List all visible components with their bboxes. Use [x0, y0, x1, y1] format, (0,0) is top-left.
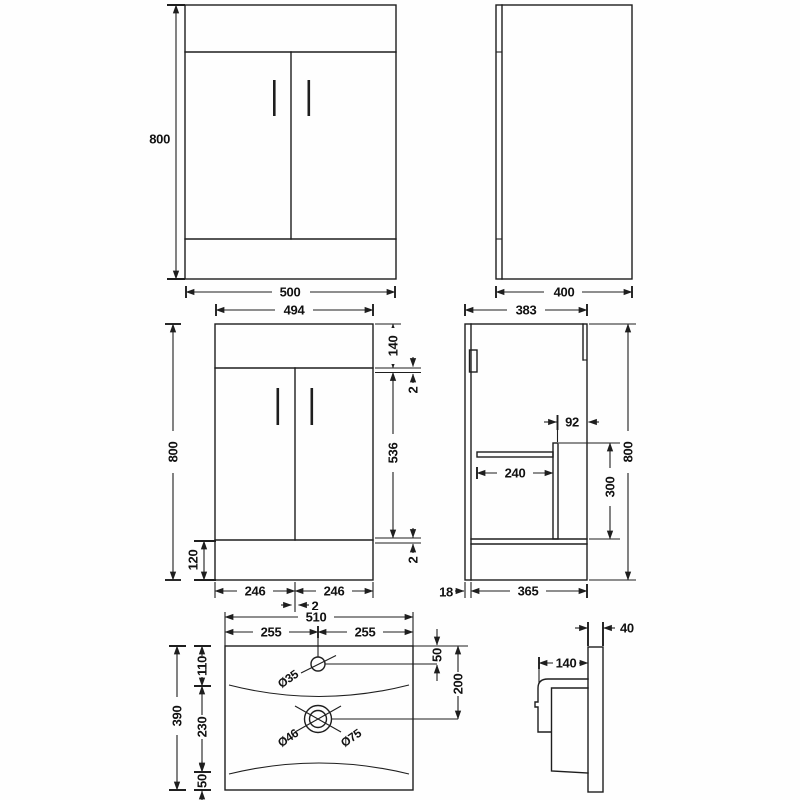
basin-back-curve — [229, 685, 409, 697]
dim-bowl-zone: 230 — [195, 717, 210, 738]
technical-drawing-canvas: 800 500 400 — [0, 0, 800, 800]
dim-top-gap: 2 — [406, 386, 421, 393]
dim-basin-left-half: 255 — [261, 625, 282, 640]
dim-lines-front-detail — [165, 303, 421, 612]
basin-front-curve — [229, 763, 409, 774]
dim-basin-right-half: 255 — [355, 625, 376, 640]
dim-side-depth: 400 — [554, 285, 575, 300]
dim-top-panel: 140 — [386, 336, 401, 357]
dim-basin-lip-depth: 140 — [556, 656, 577, 671]
dim-detail-height: 800 — [166, 442, 181, 463]
dim-basin-depth: 390 — [170, 706, 185, 727]
label-tap-hole-dia: Ø35 — [275, 667, 301, 691]
basin-lip-profile — [535, 679, 588, 732]
view-front-elevation: 800 500 — [149, 5, 396, 300]
view-side-elevation: 400 — [496, 5, 632, 300]
dim-side-panel-thickness: 18 — [439, 585, 453, 600]
side-outline — [496, 5, 632, 279]
door-handle-right — [311, 388, 314, 425]
dim-section-depth: 383 — [516, 303, 537, 318]
dim-shelf-depth: 240 — [505, 466, 526, 481]
dim-front-edge: 50 — [195, 774, 210, 788]
basin-bowl-profile — [552, 688, 589, 773]
dim-waste-inset: 200 — [451, 674, 466, 695]
dim-tap-inset: 50 — [430, 648, 445, 662]
view-basin-side: 40 140 — [535, 621, 634, 793]
dim-door-height: 536 — [386, 443, 401, 464]
dim-section-height: 800 — [621, 442, 636, 463]
door-handle-left — [273, 80, 276, 116]
dim-lines-front-elevation — [167, 5, 395, 299]
dim-detail-width: 494 — [284, 303, 306, 318]
view-front-detail: 494 800 140 2 536 2 120 246 246 2 — [165, 303, 421, 614]
door-handle-right — [308, 80, 311, 116]
cabinet-detail-outline — [215, 324, 373, 580]
dim-shelf-height: 300 — [603, 477, 618, 498]
back-rail — [553, 443, 558, 539]
shelf — [477, 452, 553, 457]
label-waste-inner-dia: Ø46 — [275, 726, 301, 750]
dim-bottom-gap: 2 — [406, 556, 421, 563]
basin-back-slab — [588, 647, 603, 792]
dim-basin-width: 510 — [306, 610, 327, 625]
dim-front-width: 500 — [280, 285, 301, 300]
dim-plinth: 120 — [186, 550, 201, 571]
dim-front-height: 800 — [149, 132, 170, 147]
view-side-section: 383 800 92 240 300 18 365 — [439, 303, 636, 600]
door-handle-left — [277, 388, 280, 425]
dim-lines-side-section — [455, 303, 636, 598]
view-basin-plan: 510 255 255 390 110 230 50 50 200 Ø35 Ø4… — [169, 610, 468, 800]
dim-internal-depth: 365 — [518, 584, 539, 599]
dim-left-door: 246 — [245, 584, 266, 599]
dim-basin-thickness: 40 — [620, 621, 634, 636]
dim-right-door: 246 — [324, 584, 345, 599]
vanity-unit-drawing: 800 500 400 — [0, 0, 800, 800]
dim-tap-zone: 110 — [195, 656, 210, 676]
dim-back-offset: 92 — [565, 415, 579, 430]
label-waste-outer-dia: Ø75 — [338, 726, 364, 750]
